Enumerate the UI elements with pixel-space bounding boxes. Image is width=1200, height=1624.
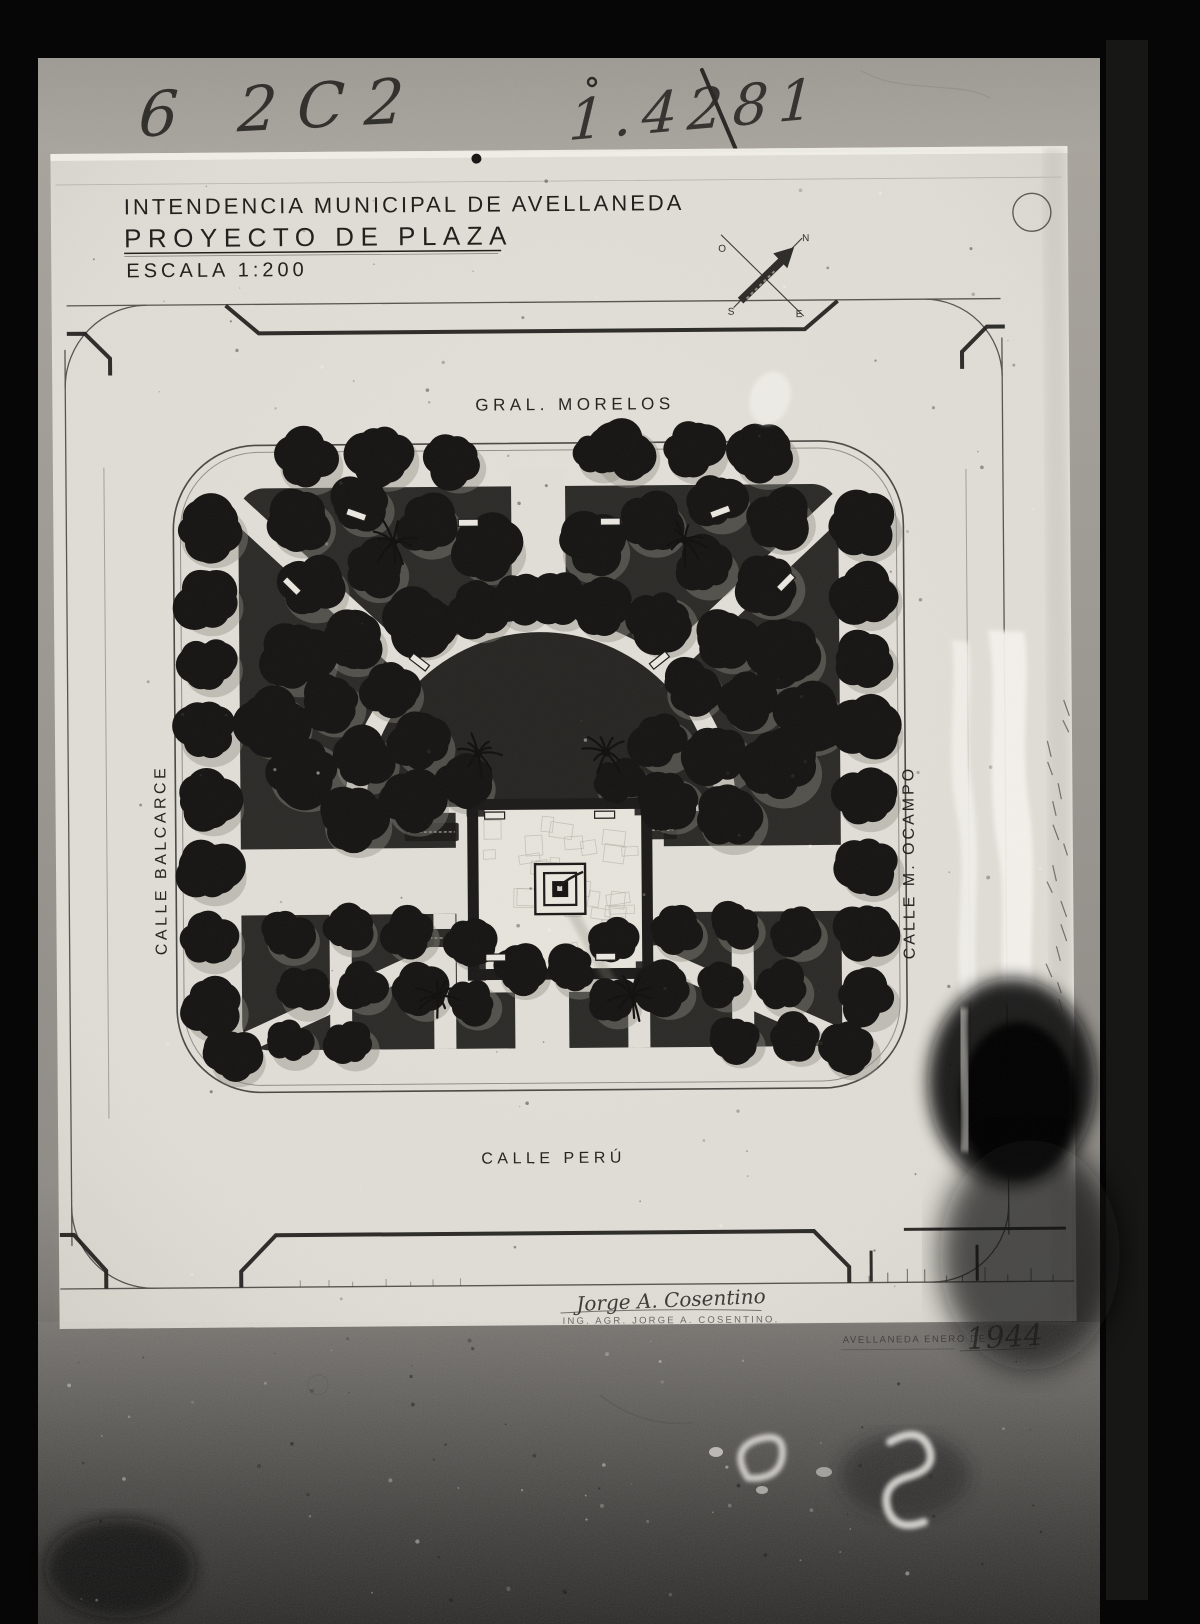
photo-negative-of-plaza-plan: 6 2C2 1.4281 INTENDENCIA MUNICIPAL DE AV…	[0, 0, 1200, 1624]
right-plate-edge-band	[1106, 40, 1148, 1600]
grain-plate-bottom	[38, 1322, 1100, 1624]
grain-paper	[55, 150, 1072, 1325]
grain-plate-top	[38, 58, 1100, 152]
photo-canvas: 6 2C2 1.4281 INTENDENCIA MUNICIPAL DE AV…	[0, 0, 1200, 1624]
